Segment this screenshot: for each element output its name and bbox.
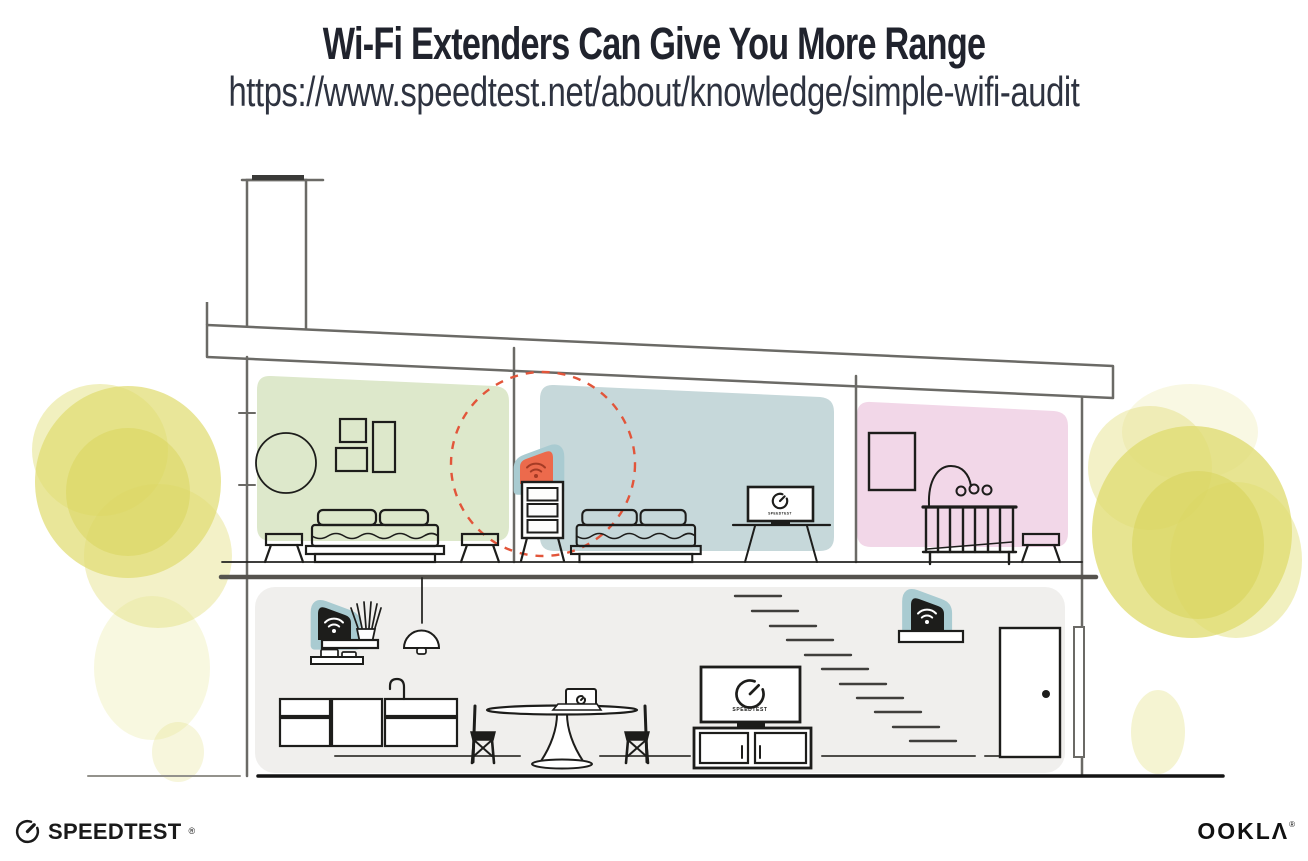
tv-screen-label: SPEEDTEST xyxy=(732,707,767,713)
speedtest-gauge-icon xyxy=(14,818,41,845)
shelf-board xyxy=(899,631,963,642)
tv-screen-label: SPEEDTEST xyxy=(768,512,792,516)
left-bush xyxy=(32,384,232,782)
ookla-logo: OOKLΛ® xyxy=(1197,818,1295,845)
tv-bedroom: SPEEDTEST xyxy=(748,487,813,524)
right-bush xyxy=(1088,384,1302,774)
house-illustration: SPEEDTEST xyxy=(0,0,1308,861)
green-room-wall xyxy=(257,376,509,541)
table-base xyxy=(532,760,592,769)
speedtest-wordmark: SPEEDTEST xyxy=(48,819,182,845)
door-knob xyxy=(1042,690,1050,698)
shelf-board xyxy=(322,640,378,648)
registered-mark: ® xyxy=(1289,820,1295,829)
speedtest-logo: SPEEDTEST® xyxy=(14,818,195,845)
living-room-tv: SPEEDTEST xyxy=(701,667,800,727)
shelf-board xyxy=(311,657,363,664)
door-side-panel xyxy=(1074,627,1084,757)
media-console xyxy=(694,728,811,768)
registered-mark: ® xyxy=(189,827,196,836)
infographic-canvas: Wi-Fi Extenders Can Give You More Range … xyxy=(0,0,1308,861)
front-door xyxy=(1000,628,1060,757)
ookla-wordmark: OOKLΛ xyxy=(1197,818,1289,845)
